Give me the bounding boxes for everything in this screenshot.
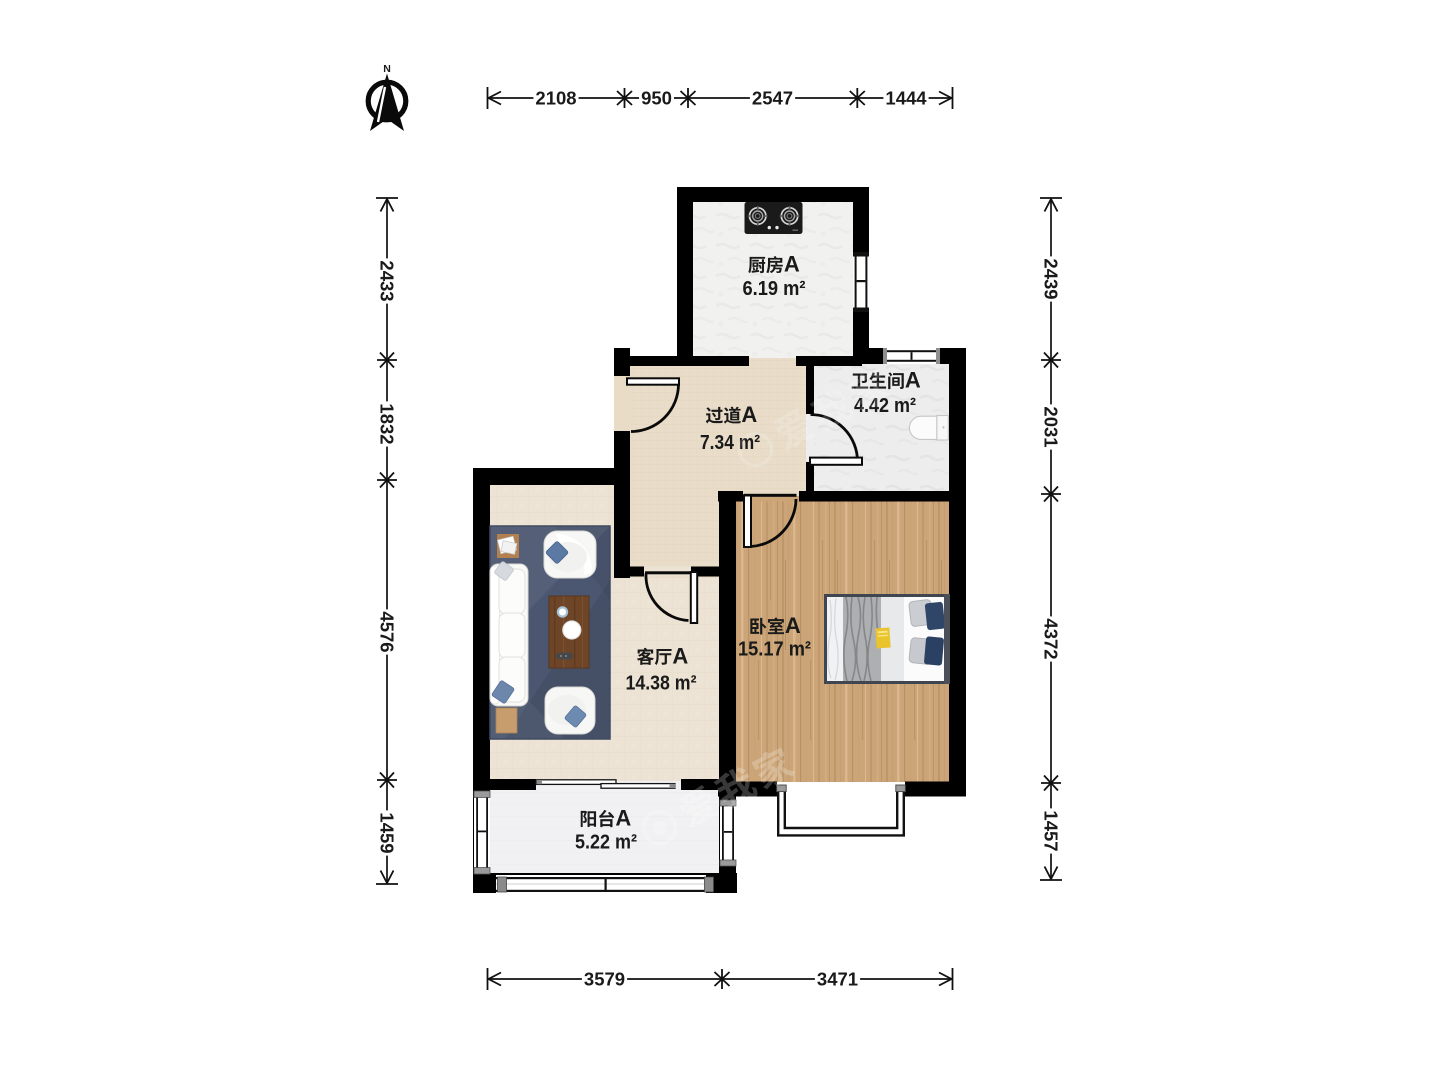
svg-text:2547: 2547 <box>752 88 793 109</box>
svg-text:950: 950 <box>641 88 672 109</box>
svg-text:2433: 2433 <box>376 260 397 301</box>
svg-text:A: A <box>615 806 631 831</box>
svg-text:14.38 m²: 14.38 m² <box>626 673 697 695</box>
svg-text:4372: 4372 <box>1040 618 1061 659</box>
svg-text:A: A <box>905 368 921 393</box>
svg-text:A: A <box>785 613 801 638</box>
svg-text:1457: 1457 <box>1040 810 1061 851</box>
svg-text:2108: 2108 <box>535 88 576 109</box>
svg-text:N: N <box>383 63 391 75</box>
svg-text:4576: 4576 <box>376 611 397 652</box>
svg-text:2439: 2439 <box>1040 258 1061 299</box>
svg-text:2031: 2031 <box>1040 406 1061 447</box>
svg-text:15.17 m²: 15.17 m² <box>738 639 811 661</box>
svg-text:A: A <box>784 252 800 277</box>
svg-text:A: A <box>672 643 688 668</box>
svg-text:3579: 3579 <box>584 969 625 990</box>
svg-text:A: A <box>741 402 757 427</box>
svg-text:1459: 1459 <box>376 812 397 853</box>
svg-text:1444: 1444 <box>885 88 927 109</box>
svg-text:1832: 1832 <box>376 403 397 444</box>
svg-text:3471: 3471 <box>817 969 858 990</box>
svg-text:5.22 m²: 5.22 m² <box>575 832 637 854</box>
svg-text:6.19 m²: 6.19 m² <box>743 278 806 300</box>
